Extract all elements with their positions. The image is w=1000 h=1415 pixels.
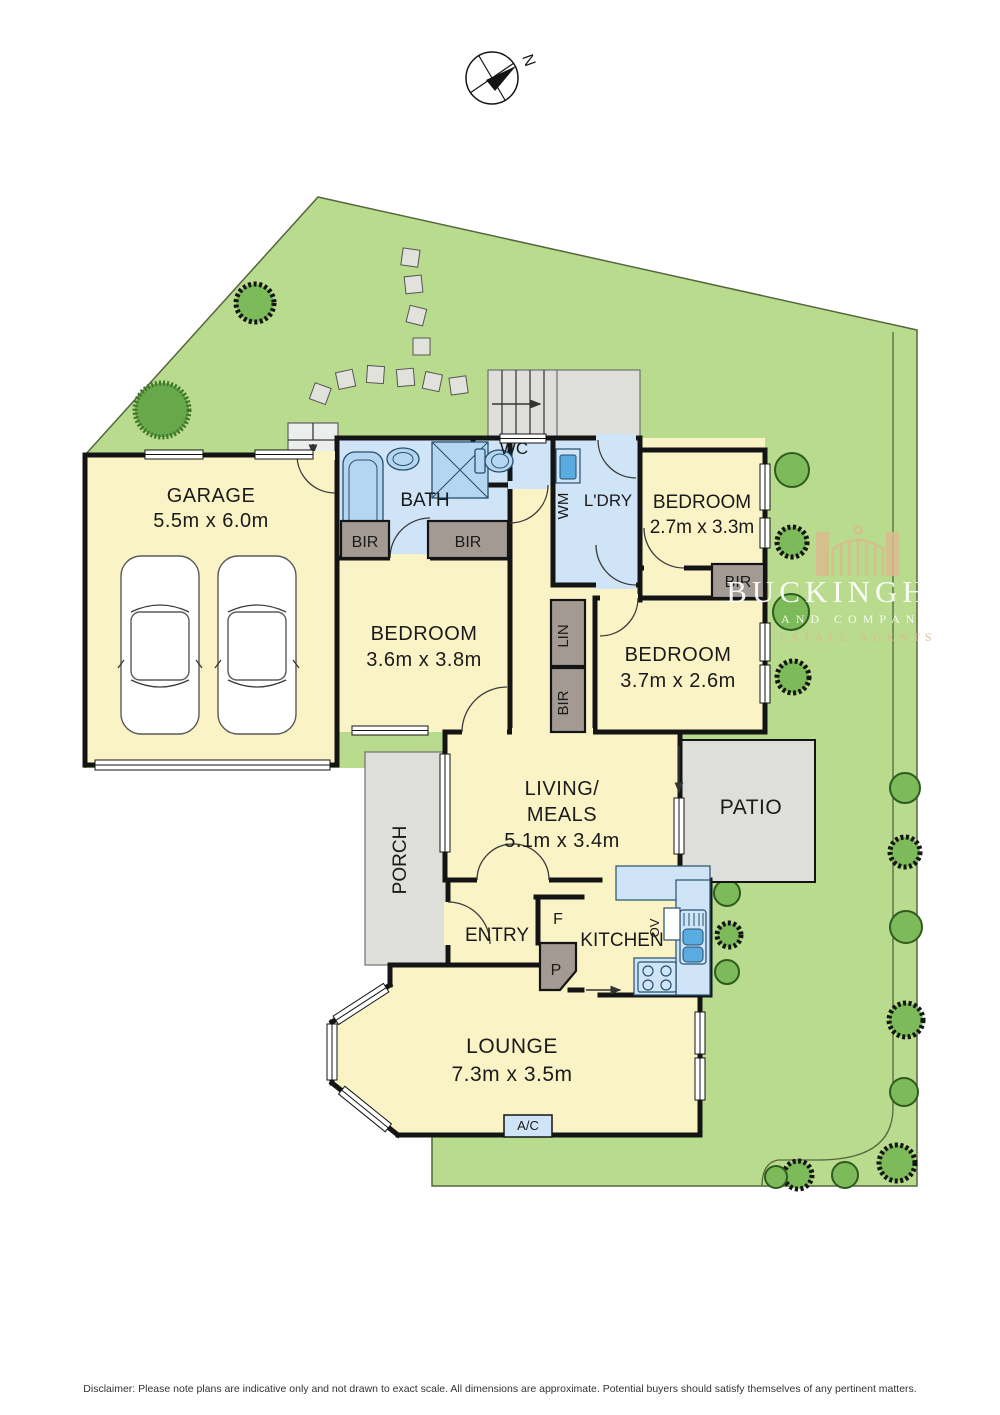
living-label-1: LIVING/ bbox=[525, 778, 600, 800]
lounge-label: LOUNGE bbox=[466, 1035, 558, 1058]
bush-icon bbox=[890, 1078, 918, 1106]
laundry-label: L'DRY bbox=[584, 491, 632, 510]
bush-icon bbox=[889, 1003, 923, 1037]
window bbox=[327, 1024, 337, 1080]
bedroom-mid-dims: 3.6m x 3.8m bbox=[366, 649, 482, 671]
garage-dims: 5.5m x 6.0m bbox=[153, 510, 269, 532]
bush-icon bbox=[890, 837, 920, 867]
bush-icon bbox=[717, 923, 741, 947]
bedroom-right-dims: 3.7m x 2.6m bbox=[620, 670, 736, 692]
bush-icon bbox=[135, 383, 189, 437]
ac-label: A/C bbox=[517, 1118, 539, 1133]
disclaimer-text: Disclaimer: Please note plans are indica… bbox=[83, 1383, 916, 1395]
window bbox=[760, 464, 770, 510]
bedroom-top-label: BEDROOM bbox=[653, 492, 751, 513]
watermark-sub: AND COMPANY bbox=[781, 612, 935, 626]
floor-plan-page: GARAGE 5.5m x 6.0m BATH WC L'DRY WM BEDR… bbox=[0, 0, 1000, 1415]
floor-plan: GARAGE 5.5m x 6.0m BATH WC L'DRY WM BEDR… bbox=[0, 0, 1000, 1415]
bush-icon bbox=[777, 527, 807, 557]
window bbox=[145, 450, 203, 459]
bush-icon bbox=[890, 911, 922, 943]
wc-label: WC bbox=[500, 439, 528, 458]
oven-icon bbox=[664, 908, 680, 940]
window bbox=[255, 450, 313, 459]
window bbox=[760, 623, 770, 661]
stairs bbox=[488, 370, 640, 438]
garage-door bbox=[95, 760, 330, 770]
bush-icon bbox=[777, 661, 809, 693]
bush-icon bbox=[765, 1166, 787, 1188]
north-label: N bbox=[518, 52, 538, 69]
fridge-label: F bbox=[553, 911, 563, 928]
basin-icon bbox=[387, 448, 419, 470]
kitchen-sink-icon bbox=[680, 910, 706, 964]
bath-label: BATH bbox=[400, 490, 449, 511]
bir-label: BIR bbox=[555, 690, 572, 715]
porch-label: PORCH bbox=[390, 826, 411, 895]
living-label-2: MEALS bbox=[527, 804, 597, 826]
window bbox=[760, 518, 770, 548]
bedroom-mid-label: BEDROOM bbox=[371, 623, 478, 645]
tree-icon bbox=[236, 284, 274, 322]
garage-label: GARAGE bbox=[167, 485, 256, 507]
bush-icon bbox=[714, 880, 740, 906]
washing-machine-label: WM bbox=[555, 493, 572, 520]
patio-label: PATIO bbox=[720, 796, 782, 819]
watermark-tagline: ESTATE AGENTS bbox=[779, 630, 936, 644]
bedroom-top-dims: 2.7m x 3.3m bbox=[650, 517, 755, 538]
compass-icon: N bbox=[466, 52, 538, 104]
bush-icon bbox=[775, 453, 809, 487]
bush-icon bbox=[832, 1162, 858, 1188]
window bbox=[440, 754, 450, 852]
lin-label: LIN bbox=[555, 624, 572, 647]
pantry-label: P bbox=[551, 962, 562, 979]
bir-label: BIR bbox=[352, 534, 379, 551]
window bbox=[760, 665, 770, 703]
window-slider bbox=[674, 798, 684, 854]
window bbox=[695, 1058, 705, 1100]
washing-machine-icon bbox=[556, 449, 580, 483]
bush-icon bbox=[879, 1145, 915, 1181]
cooktop-icon bbox=[638, 962, 676, 992]
bir-label: BIR bbox=[455, 534, 482, 551]
bush-icon bbox=[784, 1161, 812, 1189]
window bbox=[352, 726, 428, 735]
window bbox=[695, 1012, 705, 1054]
car-icon bbox=[118, 556, 202, 734]
lounge-dims: 7.3m x 3.5m bbox=[451, 1063, 572, 1086]
gate-icon bbox=[816, 527, 899, 577]
watermark-brand: BUCKINGHAM bbox=[726, 574, 990, 609]
bush-icon bbox=[890, 773, 920, 803]
bedroom-right-label: BEDROOM bbox=[625, 644, 732, 666]
oven-label: OV bbox=[647, 918, 662, 937]
entry-label: ENTRY bbox=[465, 925, 529, 946]
bush-icon bbox=[715, 960, 739, 984]
living-dims: 5.1m x 3.4m bbox=[504, 830, 620, 852]
stair-landing bbox=[557, 370, 640, 438]
car-icon bbox=[215, 556, 299, 734]
